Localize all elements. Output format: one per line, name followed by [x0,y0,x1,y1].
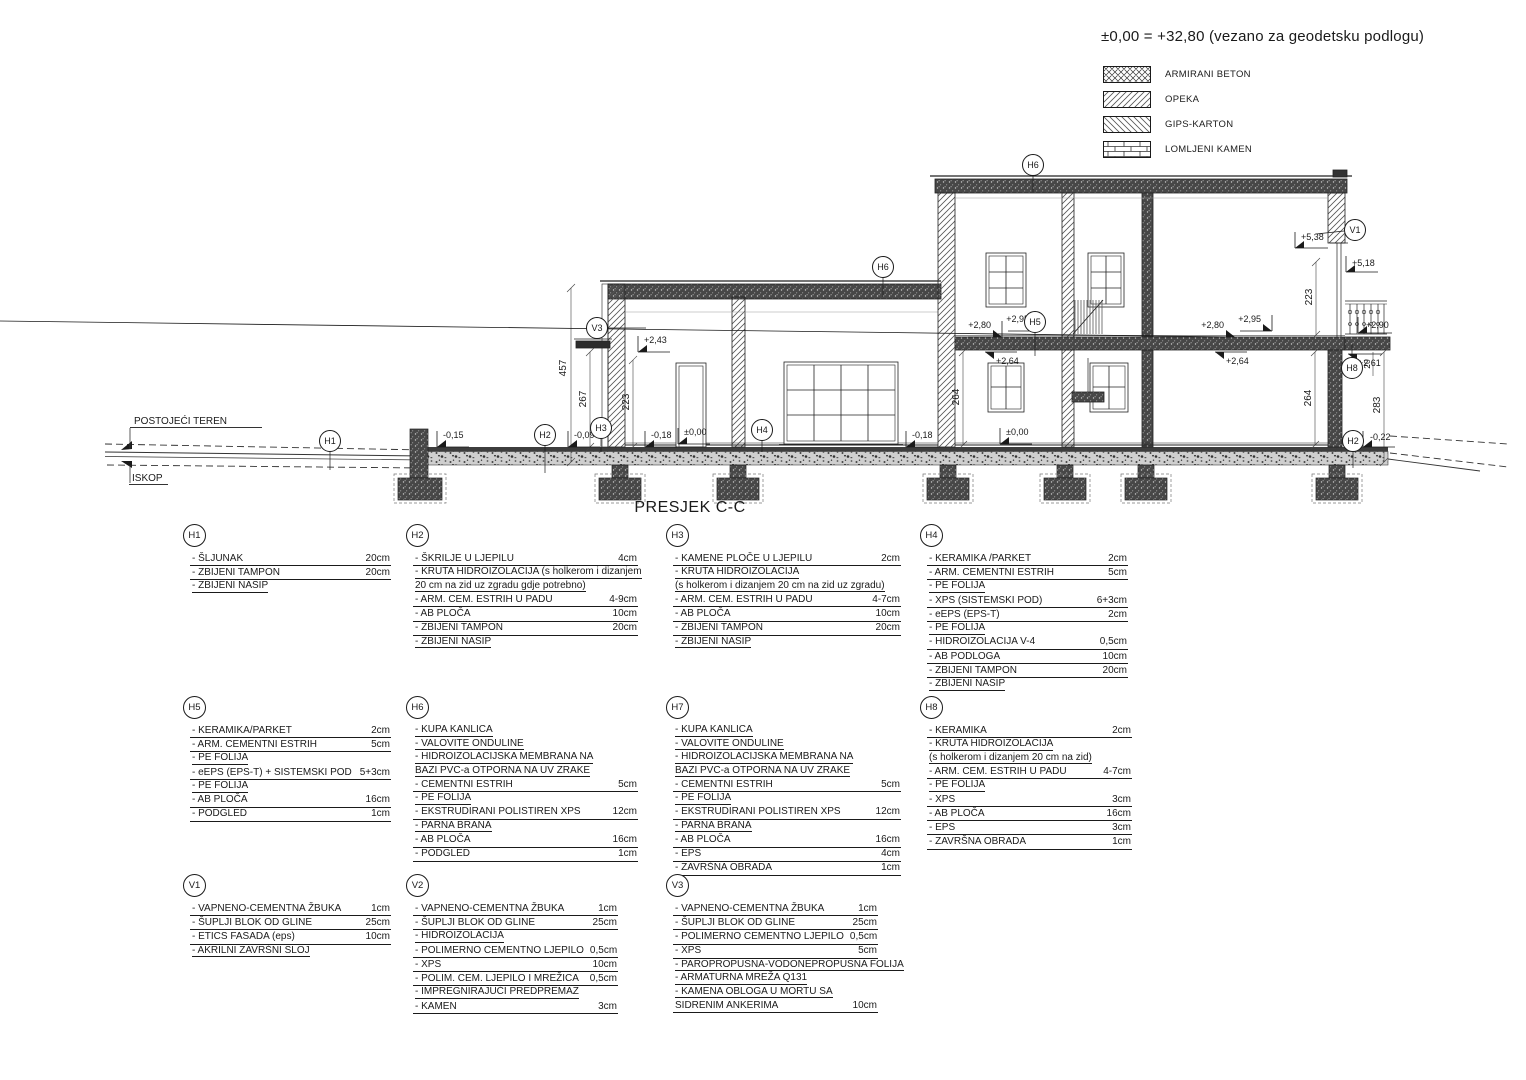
layer-label: - ZAVRŠNA OBRADA [929,836,1026,848]
layer-value: 0,5cm [584,973,617,985]
layer-label: - XPS [415,959,441,971]
marker-h3: H3 [595,423,607,433]
layer-row: - PE FOLIJA [927,580,1128,594]
layer-row: - ZBIJENI NASIP [190,580,391,594]
layer-row: - VAPNENO-CEMENTNA ŽBUKA1cm [190,902,391,916]
marker-h2-right: H2 [1347,436,1359,446]
layer-value: 20cm [607,622,637,634]
layer-row: - PE FOLIJA [927,779,1132,793]
layer-row: - EPS3cm [927,821,1132,835]
layer-value: 10cm [1097,651,1127,663]
layer-label: - ARMATURNA MREŽA Q131 [675,972,807,985]
table-badge: H6 [406,696,429,719]
architectural-section-sheet: POSTOJEĆI TEREN ISKOP [0,0,1526,1080]
layer-value: 5cm [875,779,900,791]
table-badge: H5 [183,696,206,719]
layer-label: - KAMEN [415,1001,457,1013]
layer-label: (s holkerom i dizanjem 20 cm na zid uz z… [675,580,885,593]
layer-label: - KERAMIKA/PARKET [192,725,292,737]
level-minus-0-18-b: -0,18 [912,430,933,440]
legend-label: LOMLJENI KAMEN [1165,144,1252,155]
layer-row: - ŠUPLJI BLOK OD GLINE25cm [190,916,391,930]
level-plus-2-80-b: +2,80 [1201,320,1224,330]
layer-rows: - KERAMIKA2cm - KRUTA HIDROIZOLACIJA (s … [927,724,1132,850]
dim-267: 267 [578,390,589,407]
section-title: PRESJEK C-C [595,499,785,517]
layer-value: 0,5cm [844,931,877,943]
layer-row: - VAPNENO-CEMENTNA ŽBUKA1cm [413,902,618,916]
table-badge: V3 [666,874,689,897]
layer-value: 3cm [1106,822,1131,834]
layer-label: - ZBIJENI TAMPON [192,567,280,579]
level-minus-0-15: -0,15 [443,430,464,440]
layer-row: - AB PLOČA16cm [673,833,901,847]
level-plus-2-80-a: +2,80 [968,320,991,330]
layer-rows: - VAPNENO-CEMENTNA ŽBUKA1cm - ŠUPLJI BLO… [673,902,878,1013]
layer-row: - HIDROIZOLACIJA V-40,5cm [927,636,1128,650]
layer-label: - PARNA BRANA [415,820,492,833]
layer-label: - ZBIJENI TAMPON [415,622,503,634]
layer-row: - ŠKRILJE U LJEPILU4cm [413,552,638,566]
layer-label: - PE FOLIJA [929,580,985,593]
layer-value: 20cm [360,567,390,579]
layer-row: - AB PLOČA16cm [927,807,1132,821]
terrain-right [1388,436,1508,471]
layer-row: - XPS10cm [413,958,618,972]
layer-label: - PODGLED [415,848,470,860]
layer-value: 1cm [365,808,390,820]
layer-row: - HIDROIZOLACIJSKA MEMBRANA NA [413,751,638,765]
layer-label: - PE FOLIJA [929,622,985,635]
layer-value: 10cm [360,931,390,943]
layer-row: - ETICS FASADA (eps)10cm [190,930,391,944]
layer-value: 16cm [360,794,390,806]
layer-label: - VALOVITE ONDULINE [675,738,784,751]
lomljeni-kamen-swatch [1103,141,1151,158]
layer-row: - KERAMIKA/PARKET2cm [190,724,391,738]
table-badge: V1 [183,874,206,897]
layer-value: 3cm [1106,794,1131,806]
layer-rows: - ŠLJUNAK20cm - ZBIJENI TAMPON20cm - ZBI… [190,552,391,594]
layer-row: - KRUTA HIDROIZOLACIJA [927,738,1132,752]
layer-row: - ZBIJENI NASIP [413,636,638,650]
legend-row: GIPS-KARTON [1103,112,1252,137]
table-badge: H8 [920,696,943,719]
layer-label: - HIDROIZOLACIJSKA MEMBRANA NA [415,751,593,764]
layer-label: - XPS [675,945,701,957]
layer-row: - ŠUPLJI BLOK OD GLINE25cm [673,916,878,930]
layer-rows: - VAPNENO-CEMENTNA ŽBUKA1cm - ŠUPLJI BLO… [190,902,391,958]
marker-h8: H8 [1346,363,1358,373]
layer-rows: - KERAMIKA/PARKET2cm - ARM. CEMENTNI EST… [190,724,391,822]
layer-row: - PARNA BRANA [673,820,901,834]
layer-row: - PAROPROPUSNA-VODONEPROPUSNA FOLIJA [673,959,878,973]
layer-label: - ARM. CEM. ESTRIH U PADU [929,766,1067,778]
level-plus-2-95-b: +2,95 [1238,314,1261,324]
layer-label: - PE FOLIJA [929,779,985,792]
layer-label: - ZBIJENI TAMPON [929,665,1017,677]
layer-label: - PE FOLIJA [415,792,471,805]
layer-value: 12cm [870,806,900,818]
layer-label: - KRUTA HIDROIZOLACIJA [675,566,799,579]
layer-label: - AB PLOČA [675,608,731,620]
layer-row: - XPS (SISTEMSKI POD)6+3cm [927,594,1128,608]
layer-row: - VALOVITE ONDULINE [413,738,638,752]
layer-value: 5+3cm [354,767,390,779]
layer-value: 4-7cm [866,594,900,606]
layer-row: - PE FOLIJA [673,792,901,806]
layer-row: - POLIMERNO CEMENTNO LJEPILO0,5cm [413,944,618,958]
level-plus-2-90: +2,90 [1366,320,1389,330]
layer-value: 5cm [612,779,637,791]
layer-value: 1cm [875,862,900,874]
layer-value: 16cm [607,834,637,846]
layer-label: - eEPS (EPS-T) + SISTEMSKI POD [192,767,352,779]
layer-value: 10cm [870,608,900,620]
layer-value: 3cm [592,1001,617,1013]
layer-row: - KERAMIKA2cm [927,724,1132,738]
opeka-swatch [1103,91,1151,108]
legend-row: OPEKA [1103,87,1252,112]
layer-value: 6+3cm [1091,595,1127,607]
layer-rows: - KUPA KANLICA - VALOVITE ONDULINE - HID… [413,724,638,862]
layer-row: - EKSTRUDIRANI POLISTIREN XPS12cm [413,806,638,820]
layer-value: 25cm [587,917,617,929]
legend-label: GIPS-KARTON [1165,119,1233,130]
layer-label: - AB PLOČA [675,834,731,846]
level-plus-2-64-a: +2,64 [996,356,1019,366]
layer-row: - VAPNENO-CEMENTNA ŽBUKA1cm [673,902,878,916]
marker-v1: V1 [1349,225,1360,235]
table-badge: H2 [406,524,429,547]
layer-label: SIDRENIM ANKERIMA [675,1000,778,1012]
layer-table-v3: V3 - VAPNENO-CEMENTNA ŽBUKA1cm - ŠUPLJI … [666,874,878,1013]
layer-row: - HIDROIZOLACIJA [413,930,618,944]
layer-label: - XPS [929,794,955,806]
layer-row: - PE FOLIJA [927,622,1128,636]
layer-label: - ŠUPLJI BLOK OD GLINE [192,917,312,929]
dim-264-left: 264 [951,388,962,405]
layer-label: - CEMENTNI ESTRIH [675,779,773,791]
layer-label: - KUPA KANLICA [415,724,493,737]
layer-row: SIDRENIM ANKERIMA10cm [673,999,878,1013]
layer-label: - EPS [675,848,701,860]
layer-value: 4-9cm [603,594,637,606]
layer-row: - XPS5cm [673,945,878,959]
layer-row: - POLIMERNO CEMENTNO LJEPILO0,5cm [673,930,878,944]
layer-label: - VALOVITE ONDULINE [415,738,524,751]
layer-table-h8: H8 - KERAMIKA2cm - KRUTA HIDROIZOLACIJA … [920,696,1132,850]
layer-value: 10cm [587,959,617,971]
materials-legend: ARMIRANI BETON OPEKA GIPS-KARTON LOMLJEN… [1103,62,1252,162]
layer-label: - PAROPROPUSNA-VODONEPROPUSNA FOLIJA [675,959,904,972]
layer-row: (s holkerom i dizanjem 20 cm na zid uz z… [673,580,901,594]
table-badge: H1 [183,524,206,547]
layer-row: - PODGLED1cm [190,808,391,822]
legend-label: OPEKA [1165,94,1199,105]
layer-row: - PE FOLIJA [190,780,391,794]
marker-h4: H4 [756,425,768,435]
layer-label: - AB PODLOGA [929,651,1000,663]
layer-label: - ARM. CEM. ESTRIH U PADU [415,594,553,606]
layer-row: BAZI PVC-a OTPORNA NA UV ZRAKE [413,765,638,779]
layer-label: - POLIMERNO CEMENTNO LJEPILO [675,931,844,943]
layer-row: - KUPA KANLICA [673,724,901,738]
layer-rows: - VAPNENO-CEMENTNA ŽBUKA1cm - ŠUPLJI BLO… [413,902,618,1014]
layer-row: - AB PLOČA10cm [673,607,901,621]
layer-label: - PE FOLIJA [675,792,731,805]
table-badge: V2 [406,874,429,897]
layer-label: - PODGLED [192,808,247,820]
layer-value: 25cm [360,917,390,929]
layer-row: - eEPS (EPS-T) + SISTEMSKI POD5+3cm [190,766,391,780]
layer-table-h3: H3 - KAMENE PLOČE U LJEPILU2cm - KRUTA H… [666,524,901,649]
layer-value: 2cm [365,725,390,737]
layer-row: - CEMENTNI ESTRIH5cm [673,778,901,792]
layer-value: 1cm [592,903,617,915]
layer-row: - ARM. CEMENTNI ESTRIH5cm [927,566,1128,580]
layer-value: 12cm [607,806,637,818]
layer-row: - ŠLJUNAK20cm [190,552,391,566]
layer-row: - EKSTRUDIRANI POLISTIREN XPS12cm [673,806,901,820]
layer-value: 0,5cm [1094,636,1127,648]
layer-label: - AB PLOČA [415,834,471,846]
level-zero-a: ±0,00 [684,427,706,437]
layer-label: - KERAMIKA [929,725,987,737]
layer-label: (s holkerom i dizanjem 20 cm na zid) [929,752,1092,765]
legend-label: ARMIRANI BETON [1165,69,1251,80]
layer-value: 5cm [1102,567,1127,579]
layer-table-h6: H6 - KUPA KANLICA - VALOVITE ONDULINE - … [406,696,638,862]
ground-slab [424,447,1388,465]
layer-label: - EPS [929,822,955,834]
layer-label: - ARM. CEMENTNI ESTRIH [929,567,1054,579]
layer-row: - HIDROIZOLACIJSKA MEMBRANA NA [673,751,901,765]
layer-value: 10cm [607,608,637,620]
layer-label: - ETICS FASADA (eps) [192,931,295,943]
layer-table-h2: H2 - ŠKRILJE U LJEPILU4cm - KRUTA HIDROI… [406,524,638,649]
layer-label: - eEPS (EPS-T) [929,609,1000,621]
layer-value: 25cm [847,917,877,929]
legend-row: ARMIRANI BETON [1103,62,1252,87]
layer-label: - AB PLOČA [415,608,471,620]
layer-row: - ZBIJENI TAMPON20cm [190,566,391,580]
layer-row: (s holkerom i dizanjem 20 cm na zid) [927,752,1132,766]
dim-223-left: 223 [621,393,632,410]
layer-table-h4: H4 - KERAMIKA /PARKET2cm - ARM. CEMENTNI… [920,524,1128,692]
layer-row: - POLIM. CEM. LJEPILO I MREŽICA0,5cm [413,972,618,986]
layer-row: - ŠUPLJI BLOK OD GLINE25cm [413,916,618,930]
layer-value: 1cm [1106,836,1131,848]
layer-value: 4-7cm [1097,766,1131,778]
layer-row: - ARM. CEM. ESTRIH U PADU4-7cm [927,765,1132,779]
marker-h1: H1 [324,436,336,446]
layer-label: - ŠKRILJE U LJEPILU [415,553,514,565]
layer-label: - ZBIJENI TAMPON [675,622,763,634]
layer-row: - PARNA BRANA [413,820,638,834]
layer-label: - ZBIJENI NASIP [675,636,751,649]
layer-value: 16cm [1101,808,1131,820]
marker-h5: H5 [1029,317,1041,327]
layer-rows: - KERAMIKA /PARKET2cm - ARM. CEMENTNI ES… [927,552,1128,692]
layer-row: - EPS4cm [673,848,901,862]
layer-row: - KAMENE PLOČE U LJEPILU2cm [673,552,901,566]
dim-457: 457 [558,359,569,376]
layer-label: - ARM. CEM. ESTRIH U PADU [675,594,813,606]
layer-row: - XPS3cm [927,793,1132,807]
layer-label: - KRUTA HIDROIZOLACIJA [929,738,1053,751]
layer-row: - PODGLED1cm [413,848,638,862]
legend-row: LOMLJENI KAMEN [1103,137,1252,162]
marker-h2-left: H2 [539,430,551,440]
layer-label: - VAPNENO-CEMENTNA ŽBUKA [192,903,341,915]
layer-row: - AB PODLOGA10cm [927,650,1128,664]
layer-value: 20cm [870,622,900,634]
layer-value: 2cm [1102,609,1127,621]
layer-label: BAZI PVC-a OTPORNA NA UV ZRAKE [415,765,590,778]
layer-row: - IMPREGNIRAJUĆI PREDPREMAZ [413,986,618,1000]
layer-rows: - KAMENE PLOČE U LJEPILU2cm - KRUTA HIDR… [673,552,901,649]
layer-value: 4cm [875,848,900,860]
table-badge: H7 [666,696,689,719]
layer-label: - HIDROIZOLACIJA [415,930,504,943]
layer-row: - KAMEN3cm [413,1000,618,1014]
level-zero-b: ±0,00 [1006,427,1028,437]
dim-283: 283 [1372,396,1383,413]
layer-table-v1: V1 - VAPNENO-CEMENTNA ŽBUKA1cm - ŠUPLJI … [183,874,391,958]
layer-row: - KAMENA OBLOGA U MORTU SA [673,986,878,1000]
layer-value: 2cm [1102,553,1127,565]
layer-value: 4cm [612,553,637,565]
layer-table-h7: H7 - KUPA KANLICA - VALOVITE ONDULINE - … [666,696,901,876]
layer-label: - PARNA BRANA [675,820,752,833]
layer-label: - KUPA KANLICA [675,724,753,737]
level-minus-0-18-a: -0,18 [651,430,672,440]
layer-label: BAZI PVC-a OTPORNA NA UV ZRAKE [675,765,850,778]
layer-row: - VALOVITE ONDULINE [673,738,901,752]
layer-label: - AKRILNI ZAVRŠNI SLOJ [192,945,310,958]
layer-label: - KAMENE PLOČE U LJEPILU [675,553,812,565]
layer-value: 2cm [1106,725,1131,737]
level-plus-2-43: +2,43 [644,335,667,345]
layer-label: - VAPNENO-CEMENTNA ŽBUKA [415,903,564,915]
marker-h6-top-roof: H6 [1027,160,1039,170]
table-badge: H3 [666,524,689,547]
layer-label: - HIDROIZOLACIJA V-4 [929,636,1035,648]
layer-value: 2cm [875,553,900,565]
layer-label: 20 cm na zid uz zgradu gdje potrebno) [415,580,586,593]
layer-label: - ŠLJUNAK [192,553,243,565]
layer-table-h5: H5 - KERAMIKA/PARKET2cm - ARM. CEMENTNI … [183,696,391,822]
layer-label: - ZAVRŠNA OBRADA [675,862,772,874]
layer-rows: - KUPA KANLICA - VALOVITE ONDULINE - HID… [673,724,901,876]
layer-label: - ZBIJENI NASIP [929,678,1005,691]
layer-value: 1cm [612,848,637,860]
layer-value: 1cm [365,903,390,915]
layer-row: - PE FOLIJA [413,792,638,806]
layer-row: - ZBIJENI TAMPON20cm [413,622,638,636]
layer-label: - HIDROIZOLACIJSKA MEMBRANA NA [675,751,853,764]
layer-row: - ARM. CEMENTNI ESTRIH5cm [190,738,391,752]
layer-label: - VAPNENO-CEMENTNA ŽBUKA [675,903,824,915]
section-drawing: POSTOJEĆI TEREN ISKOP [0,0,1526,530]
layer-row: - ZBIJENI NASIP [673,636,901,650]
layer-value: 16cm [870,834,900,846]
layer-row: - KRUTA HIDROIZOLACIJA (s holkerom i diz… [413,566,638,580]
layer-row: BAZI PVC-a OTPORNA NA UV ZRAKE [673,765,901,779]
layer-row: - KERAMIKA /PARKET2cm [927,552,1128,566]
layer-row: - eEPS (EPS-T)2cm [927,608,1128,622]
layer-row: - AB PLOČA10cm [413,607,638,621]
layer-row: - AB PLOČA16cm [190,794,391,808]
layer-label: - IMPREGNIRAJUĆI PREDPREMAZ [415,986,579,999]
layer-row: - ZBIJENI TAMPON20cm [927,664,1128,678]
dim-264-right: 264 [1303,389,1314,406]
layer-row: - ARM. CEM. ESTRIH U PADU4-7cm [673,593,901,607]
terrain-excavation-label: ISKOP [132,473,163,484]
layer-row: - AB PLOČA16cm [413,833,638,847]
layer-row: - ARMATURNA MREŽA Q131 [673,972,878,986]
layer-label: - XPS (SISTEMSKI POD) [929,595,1042,607]
layer-value: 5cm [365,739,390,751]
layer-row: 20 cm na zid uz zgradu gdje potrebno) [413,580,638,594]
layer-label: - ŠUPLJI BLOK OD GLINE [415,917,535,929]
dim-223-right: 223 [1304,288,1315,305]
level-plus-5-18: +5,18 [1352,258,1375,268]
armirani-beton-swatch [1103,66,1151,83]
table-badge: H4 [920,524,943,547]
layer-label: - AB PLOČA [192,794,248,806]
layer-label: - ZBIJENI NASIP [415,636,491,649]
layer-value: 5cm [852,945,877,957]
layer-table-h1: H1 - ŠLJUNAK20cm - ZBIJENI TAMPON20cm - … [183,524,391,594]
layer-value: 20cm [1097,665,1127,677]
layer-label: - ZBIJENI NASIP [192,580,268,593]
marker-h6-low-roof: H6 [877,262,889,272]
layer-row: - ZAVRŠNA OBRADA1cm [927,835,1132,849]
layer-value: 1cm [852,903,877,915]
layer-row: - ZBIJENI NASIP [927,678,1128,692]
layer-label: - POLIMERNO CEMENTNO LJEPILO [415,945,584,957]
layer-rows: - ŠKRILJE U LJEPILU4cm - KRUTA HIDROIZOL… [413,552,638,649]
layer-label: - KAMENA OBLOGA U MORTU SA [675,986,833,999]
layer-label: - PE FOLIJA [192,752,248,765]
layer-label: - AB PLOČA [929,808,985,820]
layer-value: 20cm [360,553,390,565]
datum-note: ±0,00 = +32,80 (vezano za geodetsku podl… [1101,28,1424,45]
layer-value: 0,5cm [584,945,617,957]
layer-table-v2: V2 - VAPNENO-CEMENTNA ŽBUKA1cm - ŠUPLJI … [406,874,618,1014]
layer-value: 10cm [847,1000,877,1012]
layer-label: - EKSTRUDIRANI POLISTIREN XPS [415,806,581,818]
layer-row: - CEMENTNI ESTRIH5cm [413,778,638,792]
level-plus-2-64-b: +2,64 [1226,356,1249,366]
layer-label: - PE FOLIJA [192,780,248,793]
layer-row: - KRUTA HIDROIZOLACIJA [673,566,901,580]
layer-label: - EKSTRUDIRANI POLISTIREN XPS [675,806,841,818]
marker-v3: V3 [591,323,602,333]
layer-label: - KERAMIKA /PARKET [929,553,1031,565]
layer-row: - ARM. CEM. ESTRIH U PADU4-9cm [413,593,638,607]
layer-row: - KUPA KANLICA [413,724,638,738]
layer-label: - ARM. CEMENTNI ESTRIH [192,739,317,751]
layer-label: - POLIM. CEM. LJEPILO I MREŽICA [415,973,579,985]
level-minus-0-22: -0,22 [1370,432,1391,442]
layer-label: - ŠUPLJI BLOK OD GLINE [675,917,795,929]
layer-row: - PE FOLIJA [190,752,391,766]
layer-label: - CEMENTNI ESTRIH [415,779,513,791]
terrain-existing-label: POSTOJEĆI TEREN [134,414,227,427]
